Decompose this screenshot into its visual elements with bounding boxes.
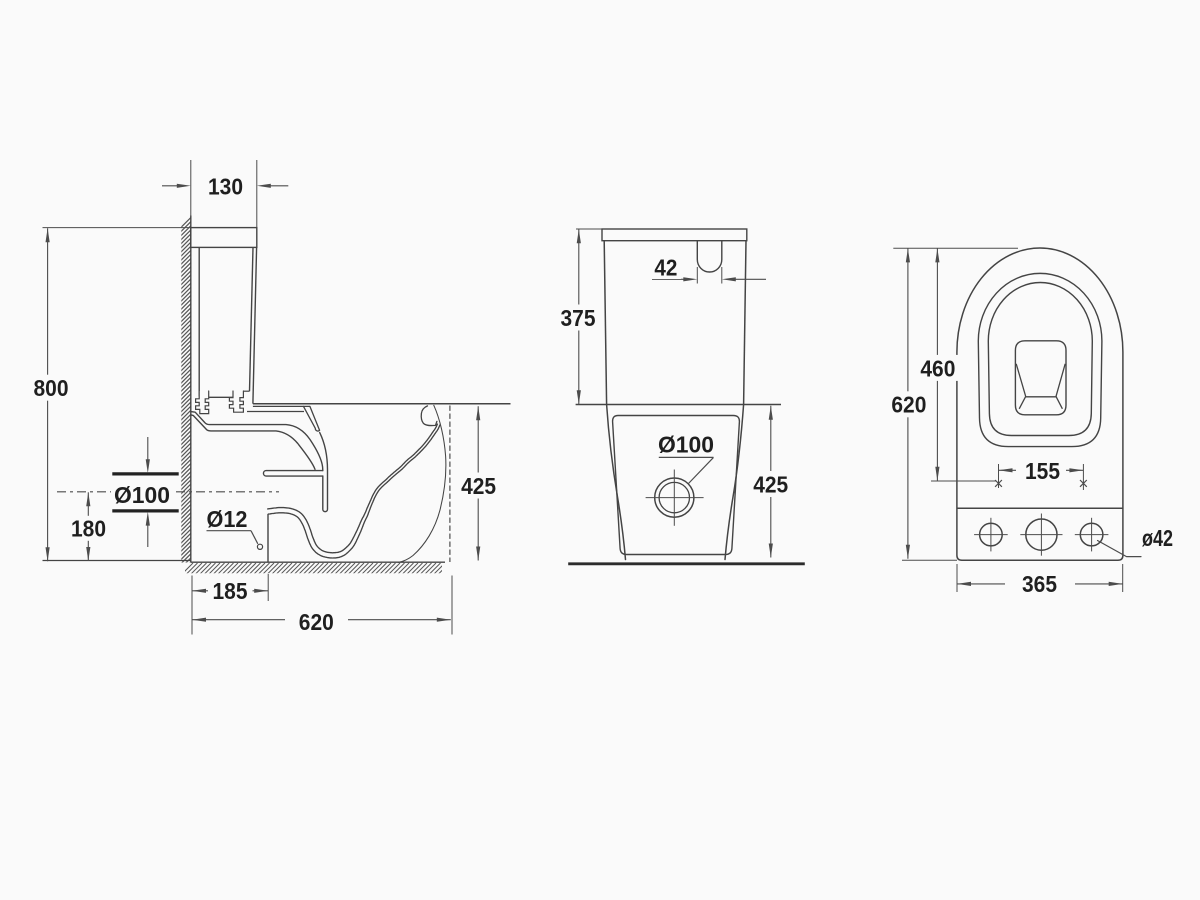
svg-text:185: 185 (213, 578, 248, 604)
svg-text:Ø100: Ø100 (658, 432, 714, 458)
svg-text:ø42: ø42 (1142, 525, 1173, 551)
svg-text:42: 42 (654, 254, 677, 280)
svg-text:620: 620 (299, 609, 334, 635)
svg-text:800: 800 (34, 375, 69, 401)
svg-text:130: 130 (208, 174, 243, 200)
svg-text:Ø12: Ø12 (207, 506, 248, 532)
svg-text:425: 425 (461, 473, 496, 499)
svg-text:365: 365 (1022, 571, 1057, 597)
svg-text:425: 425 (753, 471, 788, 497)
svg-text:620: 620 (891, 392, 926, 418)
svg-text:460: 460 (920, 355, 955, 381)
svg-text:375: 375 (561, 305, 596, 331)
svg-text:180: 180 (71, 516, 106, 542)
svg-text:Ø100: Ø100 (114, 482, 170, 508)
svg-text:155: 155 (1025, 458, 1060, 484)
